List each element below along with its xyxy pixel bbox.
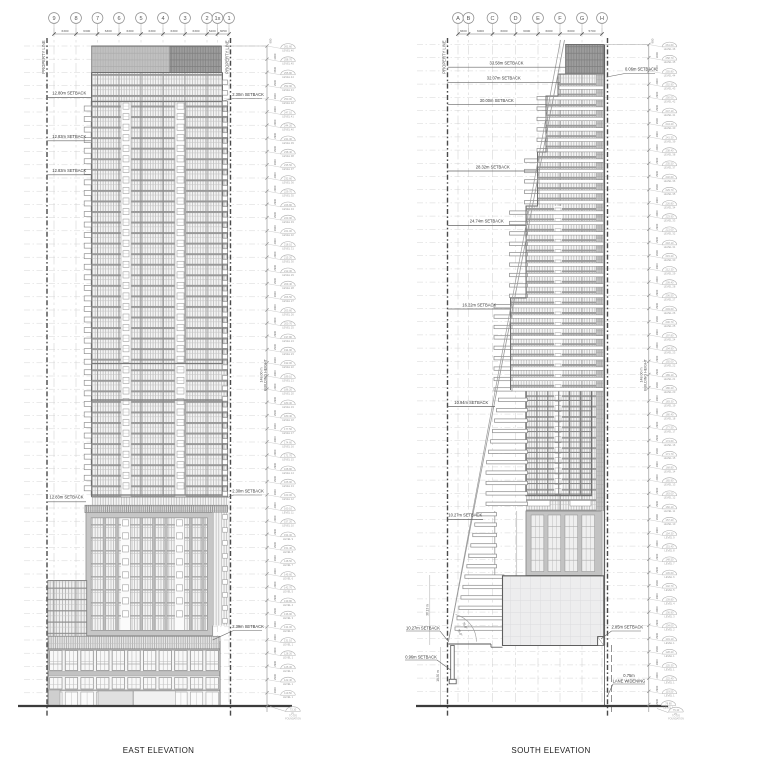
svg-text:LEVEL 26: LEVEL 26 xyxy=(282,312,294,316)
svg-text:2900: 2900 xyxy=(273,238,277,244)
svg-text:PROPERTY LINE: PROPERTY LINE xyxy=(224,40,229,74)
svg-text:2900: 2900 xyxy=(655,78,659,84)
svg-text:LEVEL 40: LEVEL 40 xyxy=(664,126,676,130)
svg-text:LEVEL 38: LEVEL 38 xyxy=(664,153,676,157)
svg-text:2900: 2900 xyxy=(655,461,659,467)
svg-text:168.80: 168.80 xyxy=(666,465,674,469)
svg-text:2900: 2900 xyxy=(655,553,659,559)
svg-text:LEVEL 45: LEVEL 45 xyxy=(282,62,294,66)
svg-text:2900: 2900 xyxy=(273,212,277,218)
svg-text:7: 7 xyxy=(96,16,99,22)
svg-text:2900: 2900 xyxy=(655,104,659,110)
svg-text:2900: 2900 xyxy=(273,251,277,257)
svg-text:18.50 m: 18.50 m xyxy=(436,670,440,682)
svg-text:E: E xyxy=(536,16,540,22)
svg-text:2900: 2900 xyxy=(655,289,659,295)
svg-text:148.50: 148.50 xyxy=(666,558,674,562)
svg-text:229.70: 229.70 xyxy=(666,188,674,192)
svg-text:LEVEL 9: LEVEL 9 xyxy=(283,537,294,541)
svg-text:0.06m SETBACK: 0.06m SETBACK xyxy=(625,67,657,72)
svg-text:LEVEL 41: LEVEL 41 xyxy=(664,113,676,117)
svg-text:221.00: 221.00 xyxy=(284,229,292,233)
svg-text:LEVEL 1: LEVEL 1 xyxy=(664,681,675,685)
svg-text:6000: 6000 xyxy=(568,29,575,33)
svg-text:119.50: 119.50 xyxy=(284,691,292,695)
svg-text:250.00: 250.00 xyxy=(666,96,674,100)
svg-text:192.00: 192.00 xyxy=(284,361,292,365)
svg-text:LEVEL 42: LEVEL 42 xyxy=(664,100,676,104)
svg-text:2900: 2900 xyxy=(273,132,277,138)
svg-text:LEVEL 28: LEVEL 28 xyxy=(282,286,294,290)
svg-text:261.60: 261.60 xyxy=(284,44,292,48)
svg-text:221.00: 221.00 xyxy=(666,228,674,232)
svg-text:238.40: 238.40 xyxy=(666,149,674,153)
svg-text:28.32m SETBACK: 28.32m SETBACK xyxy=(476,165,510,170)
svg-text:6300: 6300 xyxy=(149,29,156,33)
svg-text:LEVEL 26: LEVEL 26 xyxy=(664,311,676,315)
svg-text:2900: 2900 xyxy=(655,434,659,440)
svg-text:2900: 2900 xyxy=(273,634,277,640)
svg-text:LEVEL 29: LEVEL 29 xyxy=(664,271,676,275)
svg-text:128.20: 128.20 xyxy=(284,652,292,656)
svg-text:2900: 2900 xyxy=(655,408,659,414)
svg-text:H: H xyxy=(600,16,604,22)
svg-text:2900: 2900 xyxy=(655,223,659,229)
svg-text:131.10: 131.10 xyxy=(666,637,674,641)
svg-text:2900: 2900 xyxy=(273,304,277,310)
svg-text:24.74m SETBACK: 24.74m SETBACK xyxy=(470,219,504,224)
svg-text:LEVEL 6: LEVEL 6 xyxy=(664,575,675,579)
svg-text:2900: 2900 xyxy=(273,489,277,495)
svg-text:2900: 2900 xyxy=(273,423,277,429)
svg-text:2900: 2900 xyxy=(273,93,277,99)
svg-text:186.20: 186.20 xyxy=(666,386,674,390)
svg-text:9: 9 xyxy=(52,16,55,22)
svg-text:2900: 2900 xyxy=(273,594,277,600)
svg-text:2900: 2900 xyxy=(273,172,277,178)
svg-text:203.60: 203.60 xyxy=(284,308,292,312)
svg-text:LEVEL 25: LEVEL 25 xyxy=(664,324,676,328)
svg-text:2900: 2900 xyxy=(655,632,659,638)
svg-text:209.40: 209.40 xyxy=(666,281,674,285)
svg-text:LEVEL 1: LEVEL 1 xyxy=(664,641,675,645)
svg-text:171.70: 171.70 xyxy=(284,454,292,458)
svg-text:LEVEL 8: LEVEL 8 xyxy=(664,549,675,553)
svg-text:2900: 2900 xyxy=(273,291,277,297)
svg-text:LEVEL 2: LEVEL 2 xyxy=(283,629,294,633)
svg-text:LEVEL 40: LEVEL 40 xyxy=(282,128,294,132)
svg-text:163.00: 163.00 xyxy=(284,493,292,497)
svg-text:2900: 2900 xyxy=(655,157,659,163)
svg-text:235.50: 235.50 xyxy=(284,163,292,167)
svg-text:LEVEL 19: LEVEL 19 xyxy=(664,403,676,407)
svg-text:LEVEL 1: LEVEL 1 xyxy=(664,654,675,658)
svg-text:LEVEL 1: LEVEL 1 xyxy=(283,695,294,699)
svg-text:215.20: 215.20 xyxy=(666,254,674,258)
svg-text:235.50: 235.50 xyxy=(666,162,674,166)
svg-text:2900: 2900 xyxy=(273,344,277,350)
svg-text:LEVEL 11: LEVEL 11 xyxy=(664,509,676,513)
svg-text:LEVEL 16: LEVEL 16 xyxy=(664,443,676,447)
svg-text:2900: 2900 xyxy=(655,566,659,572)
svg-text:LEVEL 24: LEVEL 24 xyxy=(664,337,676,341)
svg-text:2900: 2900 xyxy=(273,647,277,653)
svg-text:194.90: 194.90 xyxy=(666,347,674,351)
svg-text:154.30: 154.30 xyxy=(284,533,292,537)
svg-text:2900: 2900 xyxy=(655,514,659,520)
svg-text:LEVEL 18: LEVEL 18 xyxy=(282,418,294,422)
svg-text:2900: 2900 xyxy=(655,236,659,242)
svg-text:2900: 2900 xyxy=(655,540,659,546)
svg-text:2.30m SETBACK: 2.30m SETBACK xyxy=(232,489,264,494)
svg-text:LEVEL 32: LEVEL 32 xyxy=(664,232,676,236)
svg-text:174.60: 174.60 xyxy=(284,440,292,444)
svg-text:244.20: 244.20 xyxy=(284,124,292,128)
svg-text:139.80: 139.80 xyxy=(284,599,292,603)
svg-text:151.40: 151.40 xyxy=(666,545,674,549)
svg-text:2900: 2900 xyxy=(655,474,659,480)
svg-text:FOUNDATION: FOUNDATION xyxy=(668,717,684,720)
svg-text:2900: 2900 xyxy=(273,106,277,112)
svg-text:2900: 2900 xyxy=(273,264,277,270)
svg-text:2900: 2900 xyxy=(273,370,277,376)
svg-text:F: F xyxy=(558,16,562,22)
svg-text:LEVEL 41: LEVEL 41 xyxy=(282,114,294,118)
svg-text:2900: 2900 xyxy=(273,396,277,402)
svg-text:250.00: 250.00 xyxy=(284,97,292,101)
svg-text:261.60: 261.60 xyxy=(666,43,674,47)
svg-text:LEVEL 15: LEVEL 15 xyxy=(664,456,676,460)
svg-text:33.58m SETBACK: 33.58m SETBACK xyxy=(490,61,524,66)
svg-text:LEVEL 33: LEVEL 33 xyxy=(664,219,676,223)
svg-text:6000: 6000 xyxy=(477,29,484,33)
svg-text:LEVEL 33: LEVEL 33 xyxy=(282,220,294,224)
svg-text:LEVEL 31: LEVEL 31 xyxy=(664,245,676,249)
svg-text:2900: 2900 xyxy=(655,593,659,599)
svg-text:2900: 2900 xyxy=(655,276,659,282)
svg-text:226.80: 226.80 xyxy=(666,201,674,205)
svg-text:194.90: 194.90 xyxy=(284,348,292,352)
svg-text:160.10: 160.10 xyxy=(284,506,292,510)
svg-text:2900: 2900 xyxy=(273,80,277,86)
svg-text:12.83m SETBACK: 12.83m SETBACK xyxy=(52,168,86,173)
svg-text:LEVEL 1: LEVEL 1 xyxy=(664,694,675,698)
svg-text:LEVEL 20: LEVEL 20 xyxy=(282,392,294,396)
svg-text:122.40: 122.40 xyxy=(666,677,674,681)
svg-text:247.10: 247.10 xyxy=(666,109,674,113)
svg-text:LEVEL 1: LEVEL 1 xyxy=(664,667,675,671)
svg-text:2900: 2900 xyxy=(655,91,659,97)
svg-text:165.90: 165.90 xyxy=(666,479,674,483)
svg-text:203.60: 203.60 xyxy=(666,307,674,311)
svg-text:LEVEL 12: LEVEL 12 xyxy=(282,497,294,501)
svg-text:142.70: 142.70 xyxy=(666,584,674,588)
svg-text:2900: 2900 xyxy=(273,185,277,191)
svg-text:LEVEL 19: LEVEL 19 xyxy=(282,405,294,409)
svg-text:FOUNDATION: FOUNDATION xyxy=(285,717,301,720)
svg-text:2900: 2900 xyxy=(655,118,659,124)
svg-text:2900: 2900 xyxy=(655,606,659,612)
svg-text:2.85m SETBACK: 2.85m SETBACK xyxy=(612,625,644,630)
svg-text:2900: 2900 xyxy=(655,487,659,493)
svg-text:LEVEL 45: LEVEL 45 xyxy=(664,60,676,64)
svg-text:2900: 2900 xyxy=(655,302,659,308)
svg-text:2900: 2900 xyxy=(655,329,659,335)
svg-text:G: G xyxy=(580,16,584,22)
svg-text:6300: 6300 xyxy=(127,29,134,33)
svg-text:LEVEL 27: LEVEL 27 xyxy=(282,299,294,303)
svg-text:LEVEL 46: LEVEL 46 xyxy=(664,47,676,51)
svg-text:LEVEL 23: LEVEL 23 xyxy=(282,352,294,356)
svg-text:2900: 2900 xyxy=(273,555,277,561)
svg-text:258.70: 258.70 xyxy=(666,56,674,60)
svg-text:252.90: 252.90 xyxy=(284,84,292,88)
svg-text:LEVEL 38: LEVEL 38 xyxy=(282,154,294,158)
svg-text:255.80: 255.80 xyxy=(666,69,674,73)
svg-text:2900: 2900 xyxy=(655,395,659,401)
svg-text:LEVEL 36: LEVEL 36 xyxy=(282,180,294,184)
svg-text:2900: 2900 xyxy=(273,462,277,468)
svg-text:6300: 6300 xyxy=(105,29,112,33)
svg-text:LEVEL 10: LEVEL 10 xyxy=(282,524,294,528)
svg-text:134.00: 134.00 xyxy=(284,625,292,629)
svg-text:2.39m SETBACK: 2.39m SETBACK xyxy=(232,624,264,629)
svg-text:8: 8 xyxy=(74,16,77,22)
svg-text:LEVEL 22: LEVEL 22 xyxy=(664,364,676,368)
svg-text:LEVEL 43: LEVEL 43 xyxy=(664,87,676,91)
svg-text:LEVEL 21: LEVEL 21 xyxy=(664,377,676,381)
svg-text:78.80: 78.80 xyxy=(665,702,672,706)
svg-text:2900: 2900 xyxy=(655,646,659,652)
svg-text:73.10: 73.10 xyxy=(290,708,297,712)
svg-text:148.50: 148.50 xyxy=(284,559,292,563)
svg-text:2.30m SETBACK: 2.30m SETBACK xyxy=(232,92,264,97)
svg-text:119.50: 119.50 xyxy=(666,690,674,694)
svg-text:LEVEL 42: LEVEL 42 xyxy=(282,101,294,105)
svg-text:244.20: 244.20 xyxy=(666,122,674,126)
svg-text:10.27m SETBACK: 10.27m SETBACK xyxy=(448,513,482,518)
svg-text:209.40: 209.40 xyxy=(284,282,292,286)
svg-text:2900: 2900 xyxy=(655,210,659,216)
svg-text:2900: 2900 xyxy=(655,527,659,533)
svg-text:3050: 3050 xyxy=(220,29,227,33)
svg-text:LEVEL 32: LEVEL 32 xyxy=(282,233,294,237)
svg-text:2900: 2900 xyxy=(655,263,659,269)
svg-text:252.90: 252.90 xyxy=(666,83,674,87)
svg-text:LEVEL 27: LEVEL 27 xyxy=(664,298,676,302)
svg-text:2900: 2900 xyxy=(273,687,277,693)
svg-text:2900: 2900 xyxy=(273,357,277,363)
svg-text:255.80: 255.80 xyxy=(284,71,292,75)
svg-text:LEVEL 8: LEVEL 8 xyxy=(283,550,294,554)
svg-text:3000: 3000 xyxy=(655,52,659,58)
svg-text:900: 900 xyxy=(269,38,273,43)
svg-text:2900: 2900 xyxy=(655,131,659,137)
svg-text:189.10: 189.10 xyxy=(284,374,292,378)
svg-text:2900: 2900 xyxy=(273,410,277,416)
svg-text:LEVEL 43: LEVEL 43 xyxy=(282,88,294,92)
svg-text:2900: 2900 xyxy=(273,528,277,534)
svg-text:183.30: 183.30 xyxy=(666,399,674,403)
svg-text:171.70: 171.70 xyxy=(666,452,674,456)
svg-text:LEVEL 18: LEVEL 18 xyxy=(664,417,676,421)
svg-text:75.10: 75.10 xyxy=(673,708,680,712)
svg-text:2900: 2900 xyxy=(273,502,277,508)
svg-text:6300: 6300 xyxy=(171,29,178,33)
svg-text:LEVEL 29: LEVEL 29 xyxy=(282,273,294,277)
svg-text:6: 6 xyxy=(117,16,120,22)
svg-text:163.00: 163.00 xyxy=(666,492,674,496)
svg-text:3000: 3000 xyxy=(273,53,277,59)
svg-text:LEVEL 4: LEVEL 4 xyxy=(283,603,294,607)
svg-text:145.60: 145.60 xyxy=(666,571,674,575)
svg-text:189.10: 189.10 xyxy=(666,373,674,377)
svg-text:192.00: 192.00 xyxy=(666,360,674,364)
svg-text:218.10: 218.10 xyxy=(666,241,674,245)
svg-text:2900: 2900 xyxy=(273,225,277,231)
svg-text:2900: 2900 xyxy=(273,119,277,125)
svg-text:LEVEL 15: LEVEL 15 xyxy=(282,458,294,462)
svg-text:LEVEL 3: LEVEL 3 xyxy=(283,616,294,620)
svg-text:LEVEL 1: LEVEL 1 xyxy=(283,642,294,646)
svg-text:LEVEL 2: LEVEL 2 xyxy=(664,628,675,632)
svg-text:32.07m SETBACK: 32.07m SETBACK xyxy=(487,76,521,81)
svg-text:LEVEL 34: LEVEL 34 xyxy=(664,205,676,209)
svg-text:LEVEL 30: LEVEL 30 xyxy=(282,260,294,264)
svg-text:12.80m SETBACK: 12.80m SETBACK xyxy=(52,91,86,96)
svg-text:LEVEL 24: LEVEL 24 xyxy=(282,339,294,343)
svg-text:900: 900 xyxy=(650,38,654,43)
svg-text:2: 2 xyxy=(205,16,208,22)
svg-text:LEVEL 22: LEVEL 22 xyxy=(282,365,294,369)
svg-text:2900: 2900 xyxy=(273,383,277,389)
svg-text:2900: 2900 xyxy=(655,580,659,586)
svg-text:2900: 2900 xyxy=(273,146,277,152)
svg-text:136.90: 136.90 xyxy=(666,611,674,615)
svg-text:2900: 2900 xyxy=(273,159,277,165)
svg-text:2900: 2900 xyxy=(273,278,277,284)
svg-text:LEVEL 36: LEVEL 36 xyxy=(664,179,676,183)
svg-text:A: A xyxy=(456,16,460,22)
svg-text:223.90: 223.90 xyxy=(666,215,674,219)
svg-text:223.90: 223.90 xyxy=(284,216,292,220)
svg-text:2900: 2900 xyxy=(655,184,659,190)
svg-text:125.30: 125.30 xyxy=(666,663,674,667)
svg-text:LEVEL 46: LEVEL 46 xyxy=(282,48,294,52)
svg-text:145.60: 145.60 xyxy=(284,572,292,576)
svg-text:2900: 2900 xyxy=(273,436,277,442)
svg-text:5200: 5200 xyxy=(209,29,216,33)
svg-text:177.50: 177.50 xyxy=(284,427,292,431)
svg-text:128.20: 128.20 xyxy=(666,650,674,654)
svg-text:2900: 2900 xyxy=(273,660,277,666)
svg-text:LEVEL 23: LEVEL 23 xyxy=(664,351,676,355)
svg-text:241.30: 241.30 xyxy=(666,135,674,139)
svg-text:2900: 2900 xyxy=(273,621,277,627)
svg-text:12.83m SETBACK: 12.83m SETBACK xyxy=(52,134,86,139)
svg-text:LANE WIDENING: LANE WIDENING xyxy=(613,679,646,684)
svg-text:LEVEL 17: LEVEL 17 xyxy=(282,431,294,435)
svg-text:LEVEL 5: LEVEL 5 xyxy=(664,588,675,592)
svg-text:C: C xyxy=(490,16,494,22)
svg-text:142.70: 142.70 xyxy=(284,586,292,590)
svg-text:157.20: 157.20 xyxy=(284,520,292,524)
svg-text:125.30: 125.30 xyxy=(284,665,292,669)
svg-text:134.00: 134.00 xyxy=(666,624,674,628)
svg-text:10.94m SETBACK: 10.94m SETBACK xyxy=(454,400,488,405)
svg-text:177.50: 177.50 xyxy=(666,426,674,430)
svg-text:2900: 2900 xyxy=(273,568,277,574)
svg-text:LEVEL 13: LEVEL 13 xyxy=(664,483,676,487)
svg-text:212.30: 212.30 xyxy=(284,269,292,273)
svg-text:LEVEL 12: LEVEL 12 xyxy=(664,496,676,500)
svg-text:LEVEL 14: LEVEL 14 xyxy=(664,469,676,473)
svg-text:151.40: 151.40 xyxy=(284,546,292,550)
svg-text:36.13 m: 36.13 m xyxy=(426,604,430,616)
svg-text:LEVEL 31: LEVEL 31 xyxy=(282,246,294,250)
svg-text:2900: 2900 xyxy=(273,674,277,680)
svg-text:LEVEL 39: LEVEL 39 xyxy=(664,139,676,143)
svg-text:238.40: 238.40 xyxy=(284,150,292,154)
svg-text:PROPERTY LINE: PROPERTY LINE xyxy=(441,40,446,74)
svg-text:LEVEL 16: LEVEL 16 xyxy=(282,444,294,448)
svg-text:6300: 6300 xyxy=(62,29,69,33)
svg-text:160.10: 160.10 xyxy=(666,505,674,509)
svg-text:1: 1 xyxy=(227,16,230,22)
svg-text:2900: 2900 xyxy=(655,672,659,678)
svg-text:LEVEL 11: LEVEL 11 xyxy=(282,510,294,514)
svg-text:232.60: 232.60 xyxy=(666,175,674,179)
svg-text:180.40: 180.40 xyxy=(284,414,292,418)
svg-text:247.10: 247.10 xyxy=(284,110,292,114)
svg-text:SOUTH ELEVATION: SOUTH ELEVATION xyxy=(511,746,590,755)
svg-text:218.10: 218.10 xyxy=(284,242,292,246)
svg-text:LEVEL 37: LEVEL 37 xyxy=(282,167,294,171)
svg-text:LEVEL 44: LEVEL 44 xyxy=(282,75,294,79)
svg-text:2900: 2900 xyxy=(273,476,277,482)
svg-text:5700: 5700 xyxy=(589,29,596,33)
svg-text:2900: 2900 xyxy=(655,619,659,625)
svg-text:2900: 2900 xyxy=(273,330,277,336)
svg-text:6000: 6000 xyxy=(523,29,530,33)
svg-text:215.20: 215.20 xyxy=(284,256,292,260)
svg-text:EAST ELEVATION: EAST ELEVATION xyxy=(123,746,195,755)
svg-text:LEVEL 35: LEVEL 35 xyxy=(282,194,294,198)
svg-text:2900: 2900 xyxy=(273,581,277,587)
svg-text:LEVEL 28: LEVEL 28 xyxy=(664,285,676,289)
svg-text:2900: 2900 xyxy=(655,659,659,665)
svg-text:5: 5 xyxy=(139,16,142,22)
svg-text:LEVEL 30: LEVEL 30 xyxy=(664,258,676,262)
svg-text:LEVEL 5: LEVEL 5 xyxy=(283,590,294,594)
svg-text:LEVEL 4: LEVEL 4 xyxy=(664,601,675,605)
svg-text:2900: 2900 xyxy=(273,542,277,548)
svg-text:183.30: 183.30 xyxy=(284,401,292,405)
svg-text:197.80: 197.80 xyxy=(284,335,292,339)
svg-text:PROPERTY LINE: PROPERTY LINE xyxy=(41,40,46,74)
svg-text:241.30: 241.30 xyxy=(284,137,292,141)
svg-text:3600: 3600 xyxy=(460,29,467,33)
svg-text:165.90: 165.90 xyxy=(284,480,292,484)
svg-text:2900: 2900 xyxy=(273,317,277,323)
svg-text:4500: 4500 xyxy=(273,66,277,72)
svg-text:6000: 6000 xyxy=(501,29,508,33)
svg-text:2900: 2900 xyxy=(273,449,277,455)
svg-text:LEVEL 17: LEVEL 17 xyxy=(664,430,676,434)
svg-text:200.70: 200.70 xyxy=(666,320,674,324)
svg-text:LEVEL 3: LEVEL 3 xyxy=(664,615,675,619)
svg-text:LEVEL 1: LEVEL 1 xyxy=(283,669,294,673)
